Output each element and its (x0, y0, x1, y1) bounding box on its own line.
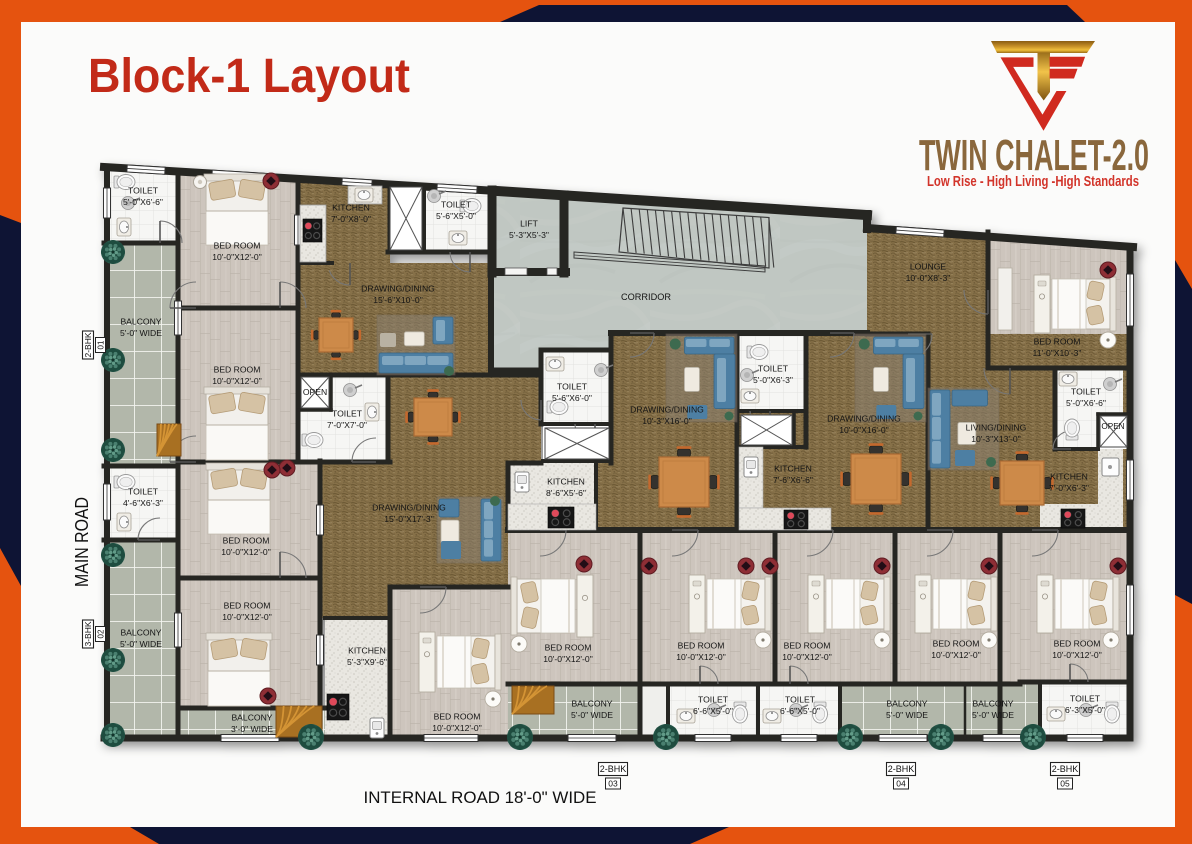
svg-text:05: 05 (1060, 779, 1070, 789)
svg-text:BED ROOM10'-0"X12'-0": BED ROOM10'-0"X12'-0" (432, 711, 482, 733)
svg-text:Low Rise - High Living -High S: Low Rise - High Living -High Standards (927, 173, 1139, 190)
svg-text:BED ROOM10'-0"X12'-0": BED ROOM10'-0"X12'-0" (212, 240, 262, 262)
svg-text:KITCHEN7'-0"X8'-0": KITCHEN7'-0"X8'-0" (331, 202, 371, 224)
svg-text:TOILET5'-6"X5'-0": TOILET5'-6"X5'-0" (436, 199, 476, 221)
svg-text:BED ROOM10'-0"X12'-0": BED ROOM10'-0"X12'-0" (931, 638, 981, 660)
svg-text:TOILET6'-6"X5'-0": TOILET6'-6"X5'-0" (693, 694, 733, 716)
svg-text:BED ROOM10'-0"X12'-0": BED ROOM10'-0"X12'-0" (676, 640, 726, 662)
svg-text:INTERNAL ROAD 18'-0" WIDE: INTERNAL ROAD 18'-0" WIDE (364, 788, 597, 807)
svg-text:TOILET5'-6"X6'-0": TOILET5'-6"X6'-0" (552, 381, 592, 403)
svg-text:BED ROOM10'-0"X12'-0": BED ROOM10'-0"X12'-0" (1052, 638, 1102, 660)
svg-text:KITCHEN5'-3"X9'-6": KITCHEN5'-3"X9'-6" (347, 645, 387, 667)
svg-text:2-BHK: 2-BHK (888, 764, 915, 774)
svg-text:BED ROOM10'-0"X12'-0": BED ROOM10'-0"X12'-0" (212, 364, 262, 386)
svg-text:LOUNGE10'-0"X8'-3": LOUNGE10'-0"X8'-3" (906, 261, 951, 283)
svg-text:TOILET7'-0"X7'-0": TOILET7'-0"X7'-0" (327, 408, 367, 430)
svg-text:TOILET5'-0"X6'-3": TOILET5'-0"X6'-3" (753, 363, 793, 385)
svg-text:TOILET5'-0"X6'-6": TOILET5'-0"X6'-6" (1066, 386, 1106, 408)
svg-text:03: 03 (608, 779, 618, 789)
svg-text:LIVING/DINING10'-3"X13'-0": LIVING/DINING10'-3"X13'-0" (966, 422, 1027, 444)
svg-text:BED ROOM10'-0"X12'-0": BED ROOM10'-0"X12'-0" (543, 642, 593, 664)
svg-text:TOILET6'-3"X5'-0": TOILET6'-3"X5'-0" (1065, 693, 1105, 715)
svg-text:02: 02 (97, 629, 106, 638)
svg-text:TOILET5'-0"X6'-6": TOILET5'-0"X6'-6" (123, 185, 163, 207)
svg-text:3-BHK: 3-BHK (83, 621, 93, 646)
svg-text:01: 01 (97, 340, 106, 349)
svg-text:KITCHEN7'-6"X6'-6": KITCHEN7'-6"X6'-6" (773, 463, 813, 485)
svg-text:KITCHEN8'-6"X5'-6": KITCHEN8'-6"X5'-6" (546, 476, 586, 498)
svg-text:BALCONY5'-0" WIDE: BALCONY5'-0" WIDE (120, 627, 162, 649)
svg-text:KITCHEN7'-0"X6'-3": KITCHEN7'-0"X6'-3" (1049, 471, 1089, 493)
svg-text:BALCONY3'-0" WIDE: BALCONY3'-0" WIDE (231, 712, 273, 734)
svg-text:MAIN ROAD: MAIN ROAD (72, 497, 92, 587)
svg-text:OPEN: OPEN (303, 387, 327, 397)
svg-text:2-BHK: 2-BHK (1052, 764, 1079, 774)
svg-text:BALCONY5'-0" WIDE: BALCONY5'-0" WIDE (120, 316, 162, 338)
svg-text:Block-1 Layout: Block-1 Layout (88, 50, 410, 103)
svg-text:BED ROOM10'-0"X12'-0": BED ROOM10'-0"X12'-0" (782, 640, 832, 662)
svg-text:BED ROOM10'-0"X12'-0": BED ROOM10'-0"X12'-0" (221, 535, 271, 557)
svg-text:2-BHK: 2-BHK (600, 764, 627, 774)
svg-text:OPEN: OPEN (1101, 422, 1124, 431)
svg-text:2-BHK: 2-BHK (83, 332, 93, 357)
svg-text:BALCONY5'-0" WIDE: BALCONY5'-0" WIDE (972, 698, 1014, 720)
svg-text:CORRIDOR: CORRIDOR (621, 292, 671, 302)
svg-text:BED ROOM11'-0"X10'-3": BED ROOM11'-0"X10'-3" (1033, 336, 1082, 358)
svg-text:TOILET4'-6"X6'-3": TOILET4'-6"X6'-3" (123, 486, 163, 508)
svg-text:BALCONY5'-0" WIDE: BALCONY5'-0" WIDE (571, 698, 613, 720)
svg-text:TOILET6'-6"X5'-0": TOILET6'-6"X5'-0" (780, 694, 820, 716)
svg-text:BED ROOM10'-0"X12'-0": BED ROOM10'-0"X12'-0" (222, 600, 272, 622)
svg-text:BALCONY5'-0" WIDE: BALCONY5'-0" WIDE (886, 698, 928, 720)
svg-text:04: 04 (896, 779, 906, 789)
